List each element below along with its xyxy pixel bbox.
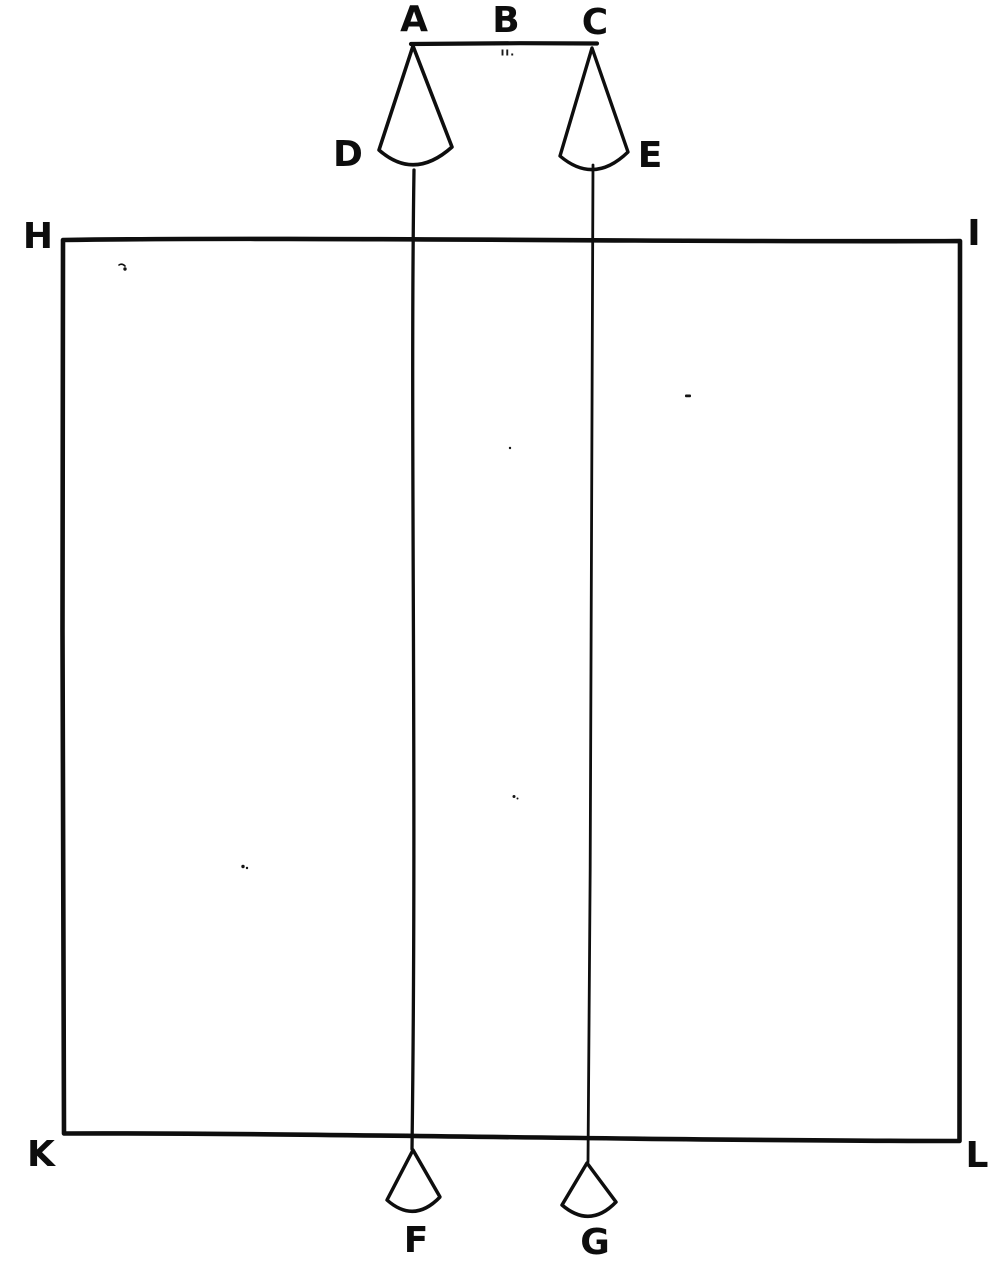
label-c: C: [582, 5, 608, 41]
ink-speck: [119, 264, 125, 266]
ink-speck: [513, 795, 516, 798]
beam-midpoint-mark: ıı.: [501, 47, 516, 58]
plumb-line-diagram: [0, 0, 1000, 1273]
label-l: L: [966, 1138, 989, 1174]
ink-speck: [123, 267, 126, 270]
ink-speck: [685, 395, 691, 398]
scan-artifacts: [119, 264, 691, 869]
figure-canvas: A B C D E H I K L F G ıı.: [0, 0, 1000, 1273]
plumb-line-left: [412, 170, 414, 1149]
beam-line: [411, 43, 597, 44]
label-f: F: [404, 1223, 429, 1259]
label-g: G: [580, 1225, 610, 1261]
plumb-bob-d-cone: [379, 46, 452, 165]
label-e: E: [638, 138, 663, 174]
label-a: A: [400, 2, 428, 38]
label-h: H: [23, 219, 53, 255]
ink-speck: [241, 865, 244, 868]
ink-speck: [246, 867, 248, 869]
plumb-line-right: [588, 165, 593, 1162]
ink-speck: [509, 447, 511, 449]
plumb-bob-f-cone: [387, 1150, 440, 1211]
label-d: D: [333, 137, 363, 173]
label-b: B: [492, 3, 519, 39]
plumb-bob-e-cone: [560, 48, 628, 170]
shaft-rectangle: [62, 239, 960, 1141]
ink-speck: [517, 798, 519, 800]
label-i: I: [967, 216, 980, 252]
label-k: K: [27, 1137, 55, 1173]
plumb-bob-g-cone: [562, 1163, 616, 1216]
